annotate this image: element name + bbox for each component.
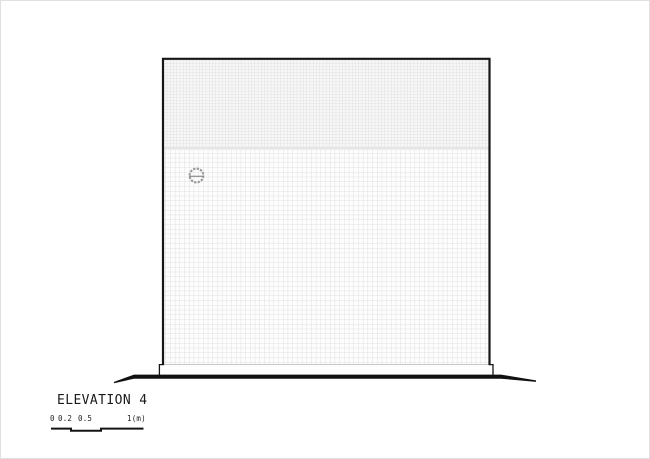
elevation-drawing: [1, 1, 650, 459]
scale-label-0: 0: [50, 414, 55, 423]
wall-lower-tile-area: [163, 150, 490, 365]
drawing-title: ELEVATION 4: [57, 393, 148, 408]
drawing-canvas: ELEVATION 4 0 0.2 0.5 1(m): [0, 0, 650, 459]
scale-label-1m: 1(m): [127, 414, 146, 423]
scale-bar: [51, 429, 144, 431]
ground-line: [114, 375, 536, 384]
plinth-right-step: [489, 365, 493, 375]
scale-label-0-2: 0.2: [58, 414, 72, 423]
plinth-left-step: [159, 365, 163, 375]
scale-label-0-5: 0.5: [78, 414, 92, 423]
band-divider: [163, 147, 490, 150]
wall-upper-tile-band: [163, 59, 490, 149]
